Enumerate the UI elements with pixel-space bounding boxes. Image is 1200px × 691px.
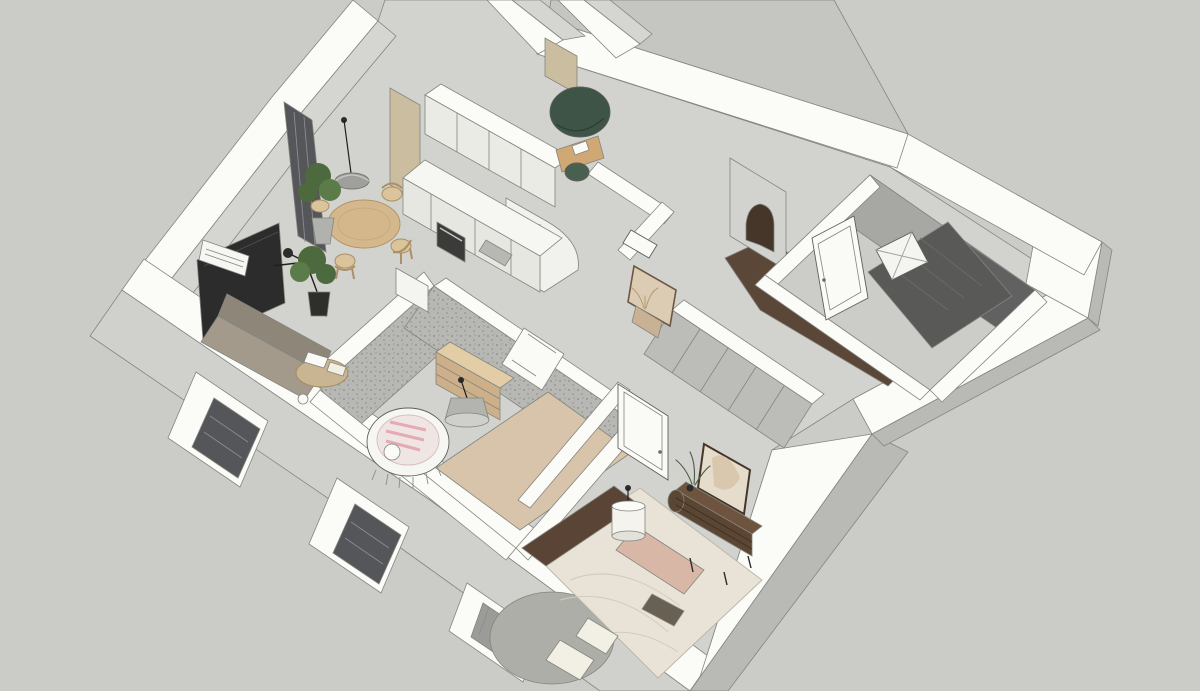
sideboard-knob	[687, 485, 694, 492]
dining-plant-foliage-2	[319, 179, 341, 201]
sofa-plant-foliage-3	[316, 264, 336, 284]
dining-chair-3	[335, 254, 355, 268]
crib-pillow	[384, 444, 400, 460]
floor-lamp-shade-2	[264, 262, 274, 272]
dining-chair-4	[311, 200, 329, 212]
nursery-pendant-diffuser	[445, 413, 489, 427]
bedroom-pendant-bottom	[612, 531, 645, 541]
green-pod-chair	[550, 87, 610, 137]
sofa-plant-foliage-2	[290, 262, 310, 282]
apartment-3d-render	[0, 0, 1200, 691]
coffee-cup	[298, 394, 308, 404]
dining-table	[328, 200, 400, 248]
dining-plant-foliage-3	[298, 182, 318, 202]
sofa-plant-pot	[308, 292, 330, 316]
bedroom-pendant-top	[612, 501, 645, 511]
desk-chair	[565, 163, 589, 181]
dining-chair-1	[382, 187, 402, 201]
bathroom-door-handle	[822, 278, 826, 282]
floorplan-3d-viewport	[0, 0, 1200, 691]
dining-plant-pot	[312, 218, 334, 244]
floor-lamp-shade-1	[283, 248, 293, 258]
bedroom-door-handle	[658, 450, 662, 454]
